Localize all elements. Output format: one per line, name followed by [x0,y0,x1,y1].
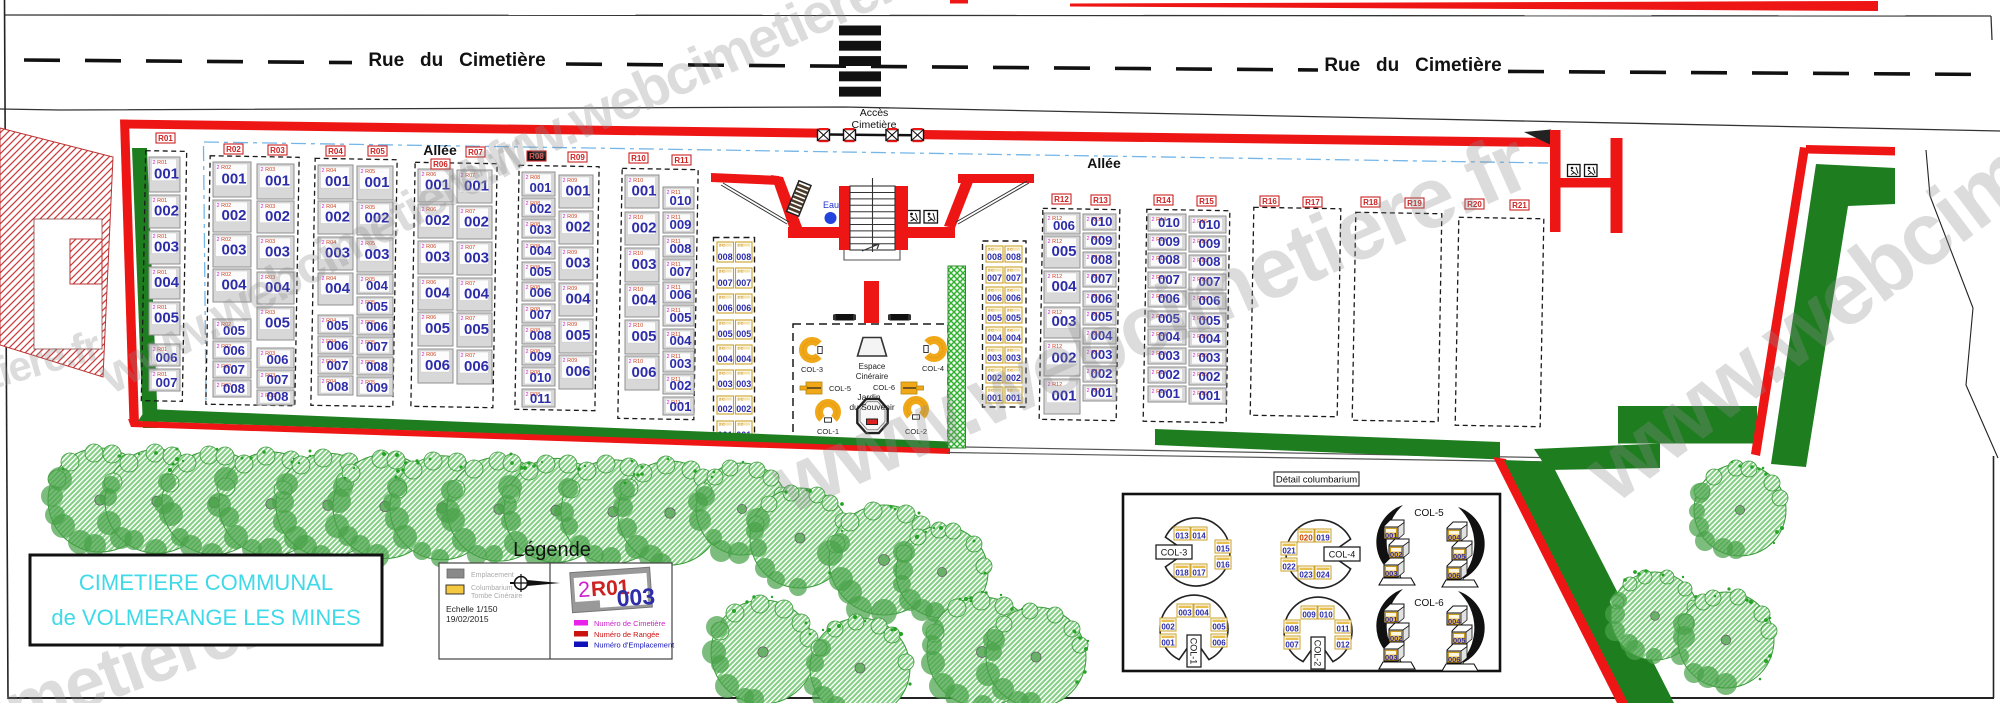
svg-text:R12: R12 [1054,195,1069,204]
svg-text:2 C: 2 C [719,398,725,402]
svg-text:002: 002 [464,214,489,231]
svg-text:007: 007 [529,307,551,322]
svg-text:009: 009 [366,380,388,395]
svg-text:2 C: 2 C [738,398,744,402]
svg-text:Numéro d'Emplacement: Numéro d'Emplacement [594,641,675,650]
svg-text:003: 003 [425,249,450,266]
svg-text:009: 009 [669,217,691,232]
svg-text:004: 004 [366,278,389,293]
svg-text:008: 008 [1285,625,1299,634]
svg-text:002: 002 [736,404,751,414]
svg-text:003: 003 [631,256,656,273]
svg-text:Cimetière: Cimetière [852,119,897,131]
svg-text:007: 007 [718,278,733,288]
svg-text:008: 008 [529,328,551,343]
svg-text:004: 004 [718,354,733,364]
svg-text:R11: R11 [674,156,689,165]
svg-text:Allée: Allée [1087,155,1121,171]
svg-text:Tombe Cinéraire: Tombe Cinéraire [471,593,522,600]
svg-text:de VOLMERANGE LES MINES: de VOLMERANGE LES MINES [51,605,360,630]
svg-text:005: 005 [987,313,1002,323]
svg-text:003: 003 [1178,609,1192,618]
svg-text:007: 007 [669,264,691,279]
svg-text:008: 008 [1006,252,1021,262]
svg-text:005: 005 [1051,243,1076,260]
svg-text:COL-1: COL-1 [1189,638,1199,665]
svg-text:008: 008 [266,389,288,404]
svg-text:2 C: 2 C [738,347,744,351]
svg-text:002: 002 [718,404,733,414]
svg-text:010: 010 [529,370,551,385]
svg-text:001: 001 [1161,639,1175,648]
svg-text:021: 021 [1282,547,1296,556]
svg-text:006: 006 [1448,571,1461,580]
svg-text:Cinéraire: Cinéraire [856,372,889,381]
svg-text:005: 005 [366,299,388,314]
svg-text:002: 002 [221,207,246,224]
svg-text:Columbarium: Columbarium [471,585,513,592]
svg-text:19/02/2015: 19/02/2015 [446,614,489,624]
svg-text:003: 003 [669,356,691,371]
svg-text:Numéro de Rangée: Numéro de Rangée [594,630,659,639]
svg-text:005: 005 [425,320,450,337]
svg-text:017: 017 [1192,569,1206,578]
svg-text:Légende: Légende [513,539,591,561]
svg-text:001: 001 [325,173,350,190]
svg-text:006: 006 [1053,218,1075,233]
svg-text:001: 001 [1385,531,1398,540]
svg-text:005: 005 [326,318,348,333]
svg-text:COL-6: COL-6 [1414,598,1444,609]
svg-text:Détail columbarium: Détail columbarium [1276,475,1357,486]
svg-text:004: 004 [154,274,180,291]
svg-text:001: 001 [1198,388,1220,403]
svg-text:2 C: 2 C [719,372,725,376]
svg-text:007: 007 [223,362,245,377]
svg-text:2 C: 2 C [738,322,744,326]
svg-text:011: 011 [1337,625,1350,634]
svg-text:006: 006 [736,303,751,313]
svg-text:Rue du Cimetière: Rue du Cimetière [368,50,545,71]
svg-text:COL-4: COL-4 [1329,550,1356,560]
svg-text:Numéro de Cimetière: Numéro de Cimetière [594,619,665,628]
svg-text:010: 010 [1158,215,1180,230]
svg-text:2: 2 [577,576,591,602]
svg-text:006: 006 [631,364,656,381]
svg-text:2 C: 2 C [719,423,725,427]
svg-text:005: 005 [1453,552,1466,561]
svg-text:003: 003 [718,379,733,389]
svg-text:002: 002 [1161,623,1175,632]
svg-text:004: 004 [1051,278,1077,295]
svg-text:005: 005 [1006,313,1021,323]
svg-text:010: 010 [1319,611,1333,620]
svg-text:010: 010 [1198,217,1220,232]
svg-text:R02: R02 [226,145,241,154]
svg-text:005: 005 [565,327,590,344]
svg-text:001: 001 [669,399,691,414]
svg-text:003: 003 [1385,569,1398,578]
svg-text:010: 010 [669,193,691,208]
svg-text:2 C: 2 C [719,270,725,274]
svg-text:009: 009 [1302,611,1316,620]
svg-text:019: 019 [1316,534,1330,543]
svg-text:001: 001 [154,166,179,183]
svg-text:020: 020 [1299,534,1313,543]
svg-text:005: 005 [1453,636,1466,645]
svg-text:001: 001 [221,171,246,188]
svg-text:R01: R01 [158,134,173,143]
svg-text:007: 007 [326,358,348,373]
svg-text:COL-3: COL-3 [1161,548,1188,558]
svg-text:007: 007 [366,339,388,354]
svg-text:003: 003 [529,222,551,237]
svg-text:R10: R10 [631,154,646,163]
svg-text:008: 008 [736,252,751,262]
svg-text:006: 006 [987,293,1002,303]
svg-text:006: 006 [425,357,450,374]
svg-text:007: 007 [987,273,1002,283]
svg-text:COL-3: COL-3 [801,365,823,374]
svg-text:010: 010 [1090,214,1112,229]
svg-text:006: 006 [669,287,691,302]
svg-text:R15: R15 [1199,197,1214,206]
svg-text:007: 007 [1090,271,1112,286]
svg-text:2 C: 2 C [738,423,744,427]
svg-text:014: 014 [1192,532,1206,541]
svg-text:007: 007 [1006,273,1021,283]
svg-text:002: 002 [631,220,656,237]
svg-text:R03: R03 [270,146,285,155]
svg-text:002: 002 [669,378,691,393]
svg-text:008: 008 [366,359,388,374]
svg-text:003: 003 [1385,653,1398,662]
svg-text:006: 006 [1006,293,1021,303]
svg-text:009: 009 [1158,234,1180,249]
svg-text:004: 004 [736,354,751,364]
svg-text:006: 006 [326,338,348,353]
svg-text:Accès: Accès [860,107,889,119]
svg-text:2 C: 2 C [738,296,744,300]
svg-text:004: 004 [565,291,591,308]
svg-text:R16: R16 [1262,197,1277,206]
svg-text:005: 005 [464,321,489,338]
svg-text:024: 024 [1316,571,1330,580]
svg-text:R04: R04 [328,147,343,156]
svg-text:006: 006 [1448,655,1461,664]
svg-text:015: 015 [1216,545,1230,554]
svg-text:COL-5: COL-5 [1414,508,1444,519]
svg-text:Echelle 1/150: Echelle 1/150 [446,604,498,614]
svg-text:001: 001 [1158,386,1180,401]
svg-text:004: 004 [529,243,552,258]
svg-text:R05: R05 [370,147,385,156]
svg-text:008: 008 [669,241,691,256]
svg-text:005: 005 [718,329,733,339]
svg-text:004: 004 [1448,617,1461,626]
svg-text:004: 004 [1448,533,1461,542]
svg-text:006: 006 [529,285,551,300]
svg-text:003: 003 [464,250,489,267]
svg-text:Espace: Espace [859,362,886,371]
svg-text:012: 012 [1336,641,1350,650]
svg-text:004: 004 [464,286,490,303]
svg-text:002: 002 [154,203,179,220]
svg-text:Emplacement: Emplacement [471,572,514,579]
svg-text:002: 002 [1390,634,1403,643]
svg-text:2 C: 2 C [738,372,744,376]
svg-text:001: 001 [565,183,590,200]
svg-text:006: 006 [366,319,388,334]
svg-text:COL-2: COL-2 [1313,640,1323,667]
svg-text:008: 008 [718,252,733,262]
svg-text:008: 008 [223,381,245,396]
svg-text:001: 001 [529,180,551,195]
svg-text:001: 001 [1385,615,1398,624]
svg-text:2 C: 2 C [719,322,725,326]
svg-text:003: 003 [616,583,656,612]
svg-text:005: 005 [669,310,691,325]
svg-text:R14: R14 [1156,196,1171,205]
svg-text:004: 004 [425,285,451,302]
svg-text:003: 003 [565,255,590,272]
svg-text:004: 004 [631,292,657,309]
svg-text:005: 005 [736,329,751,339]
svg-text:006: 006 [266,352,288,367]
svg-text:003: 003 [221,242,246,259]
svg-text:004: 004 [1195,609,1209,618]
svg-text:002: 002 [265,208,290,225]
svg-text:007: 007 [736,278,751,288]
svg-text:R13: R13 [1093,196,1108,205]
svg-text:2 C: 2 C [738,270,744,274]
svg-text:022: 022 [1282,563,1296,572]
svg-text:006: 006 [1212,639,1226,648]
svg-text:2 C: 2 C [738,244,744,248]
svg-text:CIMETIERE COMMUNAL: CIMETIERE COMMUNAL [79,570,333,595]
svg-text:013: 013 [1175,532,1189,541]
svg-text:001: 001 [631,183,656,200]
svg-text:001: 001 [364,174,389,191]
svg-text:008: 008 [1090,252,1112,267]
svg-text:001: 001 [265,173,290,190]
svg-text:023: 023 [1299,571,1313,580]
svg-text:007: 007 [1285,641,1299,650]
svg-text:005: 005 [529,264,551,279]
svg-text:005: 005 [1212,623,1226,632]
svg-text:002: 002 [529,201,551,216]
svg-text:005: 005 [631,328,656,345]
svg-text:006: 006 [565,363,590,380]
svg-text:004: 004 [669,333,692,348]
svg-text:006: 006 [464,358,489,375]
svg-text:002: 002 [1198,369,1220,384]
svg-text:008: 008 [326,379,348,394]
svg-text:002: 002 [565,219,590,236]
svg-text:003: 003 [154,239,179,256]
svg-text:2 C: 2 C [719,347,725,351]
svg-text:002: 002 [1390,550,1403,559]
svg-text:006: 006 [718,303,733,313]
svg-text:Eau: Eau [823,200,839,210]
svg-text:011: 011 [530,391,551,406]
svg-text:008: 008 [987,252,1002,262]
svg-text:2 C: 2 C [719,244,725,248]
svg-text:Rue du Cimetière: Rue du Cimetière [1324,55,1501,76]
svg-text:018: 018 [1175,569,1189,578]
svg-text:009: 009 [529,349,551,364]
svg-text:016: 016 [1216,561,1230,570]
svg-text:2 C: 2 C [719,296,725,300]
svg-text:003: 003 [736,379,751,389]
svg-text:007: 007 [266,372,288,387]
svg-text:009: 009 [1090,233,1112,248]
svg-text:COL-5: COL-5 [829,384,851,393]
